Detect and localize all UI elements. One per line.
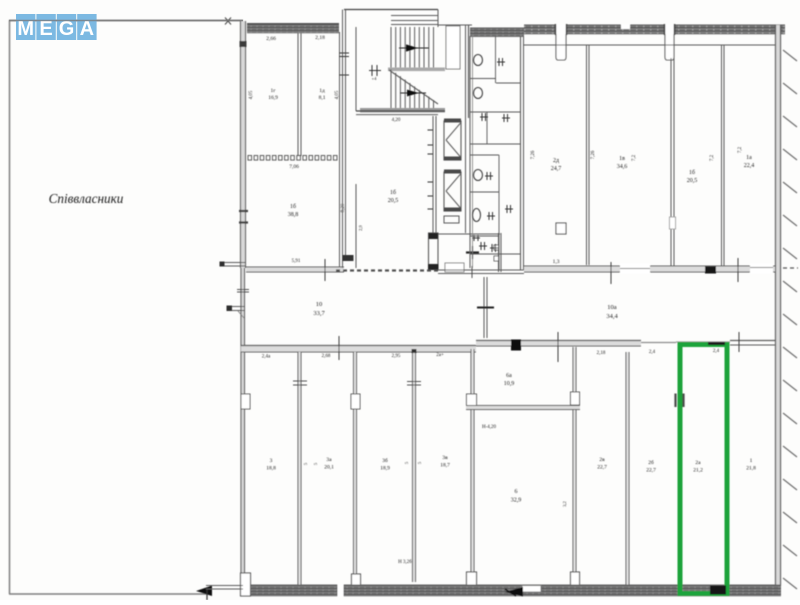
svg-text:6: 6 xyxy=(515,489,518,495)
svg-text:10: 10 xyxy=(316,301,323,308)
svg-text:1г: 1г xyxy=(270,88,276,94)
svg-text:18,9: 18,9 xyxy=(380,466,390,472)
svg-text:7,2: 7,2 xyxy=(632,154,637,161)
svg-text:2,18: 2,18 xyxy=(597,351,606,356)
svg-text:2в: 2в xyxy=(599,457,605,463)
svg-text:3а: 3а xyxy=(326,457,332,463)
svg-text:1,3: 1,3 xyxy=(553,259,560,265)
svg-text:4,05: 4,05 xyxy=(335,90,340,99)
svg-text:7,26: 7,26 xyxy=(531,150,536,159)
svg-text:4,05: 4,05 xyxy=(249,90,254,99)
svg-text:22,7: 22,7 xyxy=(646,468,656,474)
svg-text:2д: 2д xyxy=(553,158,559,164)
svg-text:2б: 2б xyxy=(648,459,654,466)
svg-text:33,7: 33,7 xyxy=(313,310,325,317)
svg-text:20,5: 20,5 xyxy=(388,198,399,204)
svg-text:34,4: 34,4 xyxy=(606,313,618,320)
svg-text:4,20: 4,20 xyxy=(392,118,401,123)
svg-text:7,2: 7,2 xyxy=(738,146,743,153)
svg-text:38,8: 38,8 xyxy=(288,212,299,218)
svg-text:6а: 6а xyxy=(506,373,512,379)
svg-text:22,7: 22,7 xyxy=(597,465,607,471)
svg-text:2,95: 2,95 xyxy=(392,354,401,359)
svg-text:1: 1 xyxy=(750,458,753,464)
svg-text:7,2: 7,2 xyxy=(710,154,715,161)
svg-text:2,68: 2,68 xyxy=(322,354,331,359)
svg-text:2а: 2а xyxy=(695,460,701,466)
svg-text:2а+: 2а+ xyxy=(436,353,444,358)
svg-text:3: 3 xyxy=(270,458,273,464)
svg-text:20,1: 20,1 xyxy=(324,465,334,471)
svg-text:5,91: 5,91 xyxy=(292,259,301,264)
svg-text:1в: 1в xyxy=(619,156,625,162)
svg-text:10,9: 10,9 xyxy=(504,381,515,387)
svg-text:18,7: 18,7 xyxy=(440,463,450,469)
svg-text:Н 3,2б: Н 3,2б xyxy=(398,560,412,565)
svg-text:8,1: 8,1 xyxy=(319,95,326,101)
svg-text:3в: 3в xyxy=(442,455,448,461)
svg-text:1б: 1б xyxy=(290,203,296,210)
svg-text:3б: 3б xyxy=(382,457,388,464)
svg-text:Н-4,20: Н-4,20 xyxy=(482,425,497,430)
svg-text:Співвласники: Співвласники xyxy=(49,191,124,206)
svg-text:18,8: 18,8 xyxy=(266,466,276,472)
svg-text:10а: 10а xyxy=(607,304,617,311)
svg-text:7,26: 7,26 xyxy=(591,150,596,159)
svg-text:2,4: 2,4 xyxy=(713,349,720,354)
svg-text:32,9: 32,9 xyxy=(511,498,522,504)
svg-text:1а: 1а xyxy=(746,155,752,161)
svg-text:+4: +4 xyxy=(372,76,378,81)
svg-text:24,7: 24,7 xyxy=(551,166,562,172)
svg-text:34,6: 34,6 xyxy=(617,164,628,170)
svg-text:7,06: 7,06 xyxy=(289,164,299,170)
svg-text:1б: 1б xyxy=(689,169,695,176)
svg-text:2,4: 2,4 xyxy=(649,350,656,355)
svg-text:22,4: 22,4 xyxy=(744,163,755,169)
svg-text:2,66: 2,66 xyxy=(266,36,276,42)
svg-text:2,4а: 2,4а xyxy=(262,355,271,360)
svg-text:16,9: 16,9 xyxy=(268,95,278,101)
svg-text:1б: 1б xyxy=(390,189,396,196)
svg-text:21,8: 21,8 xyxy=(746,466,756,472)
svg-text:20,5: 20,5 xyxy=(687,178,698,184)
svg-text:1д: 1д xyxy=(319,88,325,94)
svg-text:21,2: 21,2 xyxy=(693,468,703,474)
svg-text:2,18: 2,18 xyxy=(315,35,325,41)
